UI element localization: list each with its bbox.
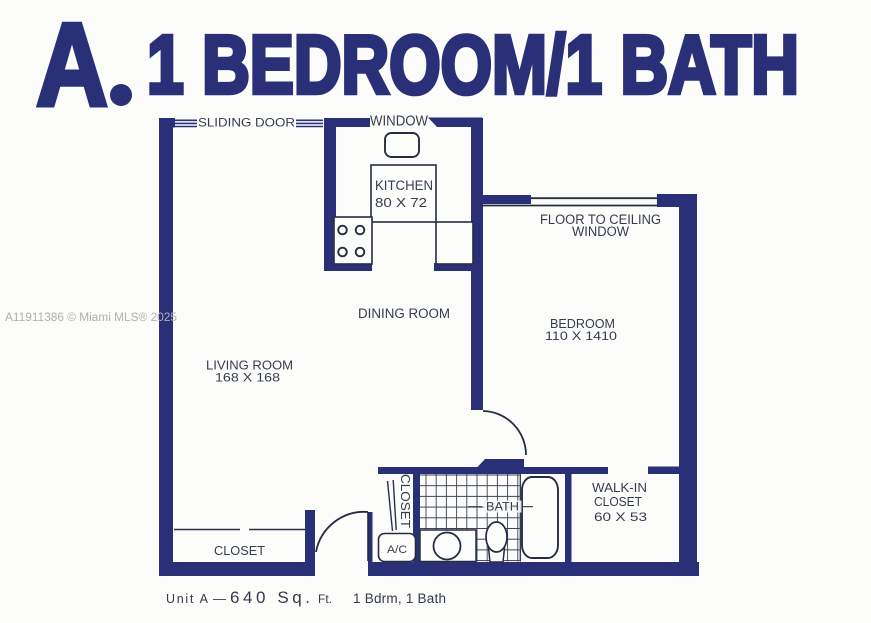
svg-text:1 BEDROOM/1 BATH: 1 BEDROOM/1 BATH — [147, 18, 799, 111]
svg-text:WALK-IN: WALK-IN — [592, 480, 647, 495]
svg-text:SLIDING DOOR: SLIDING DOOR — [198, 116, 295, 130]
svg-text:80 X 72: 80 X 72 — [375, 195, 427, 210]
svg-text:60 X 53: 60 X 53 — [594, 510, 647, 524]
svg-text:A11911386 © Miami MLS® 2025: A11911386 © Miami MLS® 2025 — [5, 310, 177, 324]
svg-text:CLOSET: CLOSET — [398, 474, 412, 528]
svg-text:CLOSET: CLOSET — [214, 543, 265, 558]
svg-text:A/C: A/C — [387, 544, 407, 556]
svg-text:WINDOW: WINDOW — [572, 224, 629, 239]
svg-text:BATH: BATH — [486, 500, 519, 514]
svg-text:CLOSET: CLOSET — [594, 494, 642, 509]
svg-text:WINDOW: WINDOW — [370, 113, 429, 130]
svg-text:A: A — [36, 0, 108, 131]
svg-text:KITCHEN: KITCHEN — [375, 178, 433, 193]
svg-text:110 X 1410: 110 X 1410 — [545, 329, 617, 343]
svg-text:DINING ROOM: DINING ROOM — [358, 306, 450, 321]
svg-text:168 X 168: 168 X 168 — [215, 371, 280, 385]
